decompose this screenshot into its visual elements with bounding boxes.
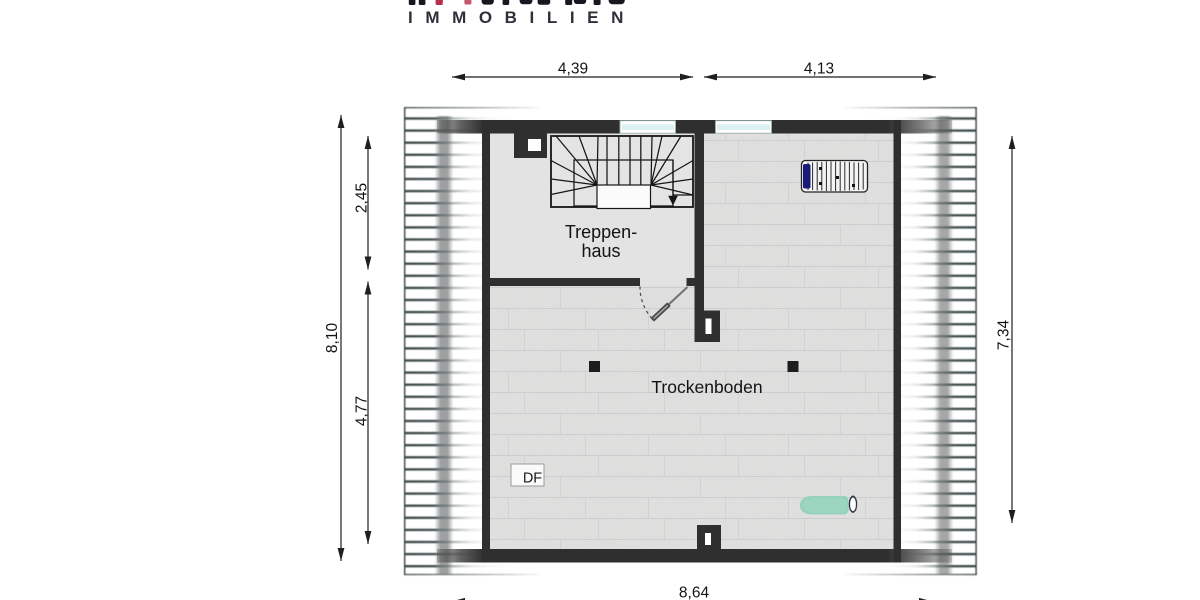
svg-text:4,13: 4,13 — [804, 61, 834, 78]
svg-text:IMMOBILIEN: IMMOBILIEN — [408, 8, 636, 27]
svg-text:DF: DF — [523, 471, 542, 487]
svg-text:7,34: 7,34 — [996, 320, 1013, 351]
svg-text:8,10: 8,10 — [324, 323, 341, 354]
svg-text:Trockenboden: Trockenboden — [651, 377, 762, 397]
svg-text:Treppen-: Treppen- — [565, 222, 637, 242]
svg-text:8,64: 8,64 — [679, 585, 710, 600]
svg-text:haus: haus — [581, 241, 620, 261]
svg-text:4,77: 4,77 — [354, 396, 371, 426]
svg-text:2,45: 2,45 — [354, 183, 371, 213]
svg-text:4,39: 4,39 — [558, 61, 588, 78]
